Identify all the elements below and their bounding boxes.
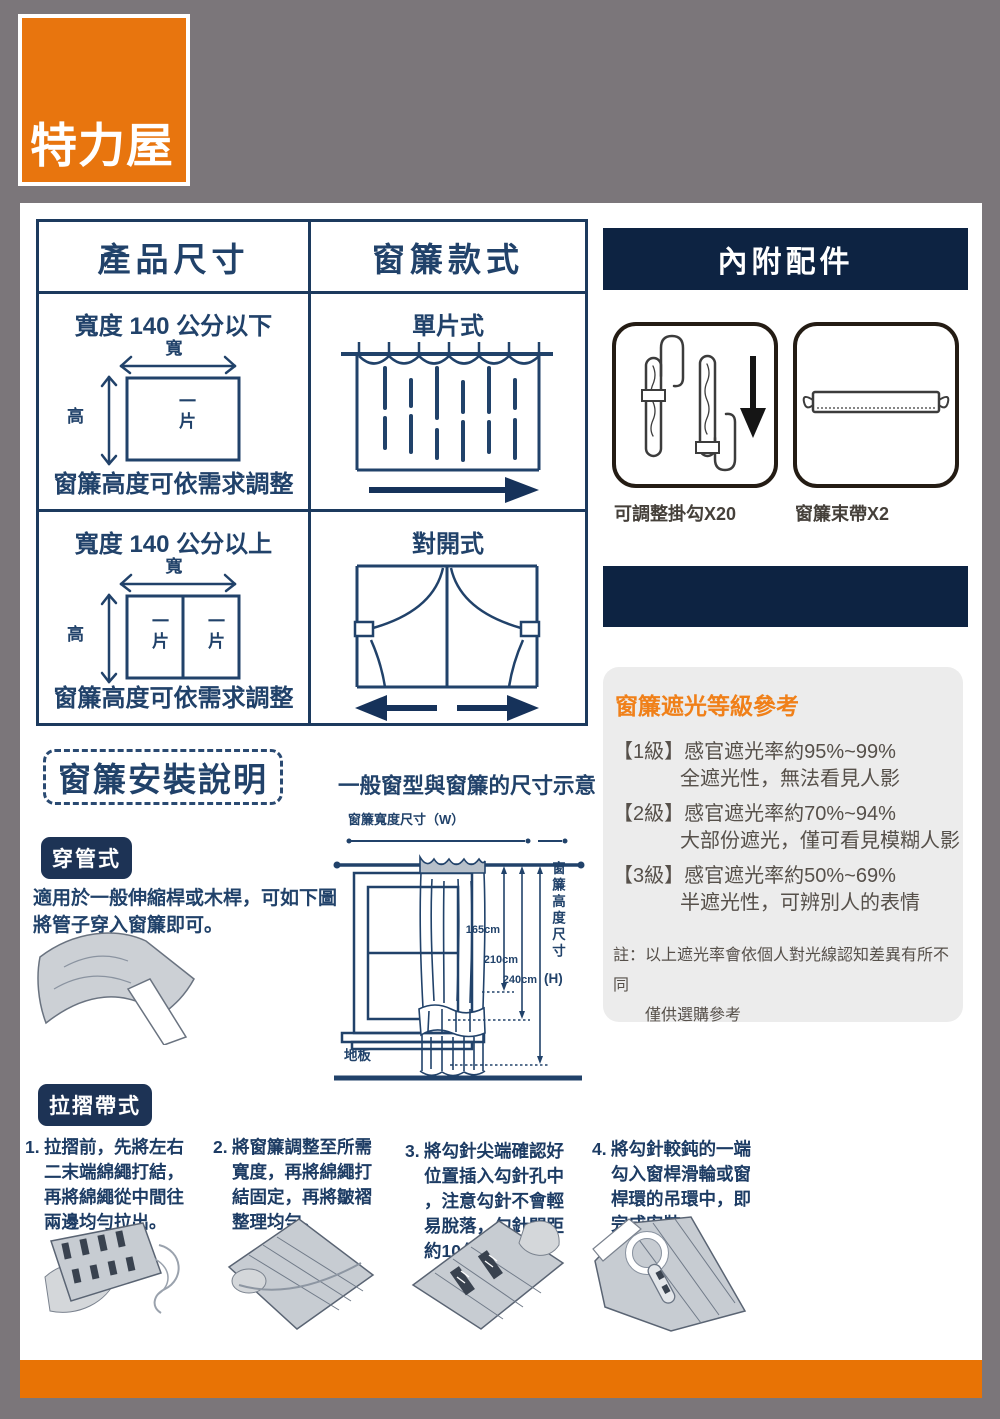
accessories-header: 內附配件	[603, 228, 968, 290]
floor-label: 地板	[344, 1047, 371, 1063]
accessory-tie-box	[793, 322, 959, 488]
style-title-split: 對開式	[311, 524, 585, 559]
piece-right-label: 一片	[202, 612, 227, 652]
style-title-single: 單片式	[311, 306, 585, 341]
one-piece-dimension-diagram: 寬 一片 高	[69, 340, 279, 472]
tie-count-label: 窗簾束帶X2	[795, 500, 889, 526]
height-label: 高	[67, 402, 84, 427]
rod-method-badge: 穿管式	[41, 837, 132, 879]
level-desc: 全遮光性，無法看見人影	[613, 766, 953, 793]
rod-through-curtain-illustration	[34, 927, 199, 1045]
two-piece-diagram-icon	[69, 558, 279, 690]
step2-tie-knot-illustration	[219, 1215, 378, 1333]
hook-count-label: 可調整掛勾X20	[614, 500, 736, 526]
level-grade: 【2級】	[613, 803, 684, 825]
two-piece-dimension-diagram: 寬 一片 一片 高	[69, 558, 279, 690]
shading-reference-box: 窗簾遮光等級參考 【1級】感官遮光率約95%~99% 全遮光性，無法看見人影 【…	[603, 667, 963, 1022]
dim-165-label: 165cm	[466, 924, 500, 936]
curtain-tie-icon	[797, 326, 955, 484]
cell-style-single: 單片式	[311, 294, 585, 512]
shading-level-2: 【2級】感官遮光率約70%~94% 大部份遮光，僅可看見模糊人影	[613, 801, 953, 855]
footer-orange-bar	[20, 1360, 982, 1398]
down-arrow-icon	[740, 356, 766, 438]
dim-240-label: 240cm	[503, 974, 537, 986]
level-grade: 【1級】	[613, 741, 684, 763]
size-note: 窗簾高度可依需求調整	[39, 678, 308, 713]
level-grade: 【3級】	[613, 865, 684, 887]
brand-logo-text: 特力屋	[30, 107, 174, 176]
brand-logo: 特力屋	[18, 14, 190, 186]
dim-210-label: 210cm	[484, 954, 518, 966]
level-rate: 感官遮光率約70%~94%	[684, 803, 896, 825]
slide-right-arrow-icon	[369, 477, 539, 503]
cell-style-split: 對開式	[311, 512, 585, 723]
cell-size-under140: 寬度 140 公分以下 寬 一片 高 窗簾高度可依需求調整	[39, 294, 311, 512]
step3-insert-hooks-illustration	[407, 1215, 568, 1333]
shading-note-line2: 僅供選購參考	[613, 1001, 953, 1031]
table-header-curtain-style: 窗簾款式	[311, 222, 585, 294]
level-rate: 感官遮光率約50%~69%	[684, 865, 896, 887]
level-desc: 大部份遮光，僅可看見模糊人影	[613, 828, 953, 855]
accessory-hooks-box	[612, 322, 778, 488]
piece-label: 一片	[173, 392, 198, 432]
height-dimension-suffix: (H)	[544, 971, 563, 986]
shading-note-line1: 註：以上遮光率會依個人對光線認知差異有所不同	[613, 941, 953, 1001]
shading-title: 窗簾遮光等級參考	[615, 687, 953, 721]
split-curtain-icon	[341, 556, 553, 724]
width-dimension-label: 窗簾寬度尺寸（W）	[348, 809, 464, 828]
step4-hang-on-ring-illustration	[591, 1215, 749, 1333]
level-desc: 半遮光性，可辨別人的表情	[613, 890, 953, 917]
size-style-table: 產品尺寸 窗簾款式 寬度 140 公分以下 寬 一片 高 窗	[36, 219, 588, 726]
width-label: 寬	[69, 552, 279, 577]
install-title-box: 窗簾安裝說明	[43, 749, 283, 805]
navy-divider-bar	[603, 566, 968, 627]
step1-pull-strings-illustration	[35, 1215, 187, 1333]
page: 產品尺寸 窗簾款式 寬度 140 公分以下 寬 一片 高 窗	[20, 203, 982, 1398]
pleat-method-badge: 拉摺帶式	[38, 1084, 152, 1126]
height-dimension-label: 窗簾高度尺寸	[547, 861, 567, 960]
cell-size-over140: 寬度 140 公分以上 寬 一片 一片 高 窗簾高度可依需求	[39, 512, 311, 723]
table-header-product-size: 產品尺寸	[39, 222, 311, 294]
shading-level-3: 【3級】感官遮光率約50%~69% 半遮光性，可辨別人的表情	[613, 863, 953, 917]
open-both-sides-arrow-icon	[355, 695, 539, 721]
size-note: 窗簾高度可依需求調整	[39, 464, 308, 499]
single-panel-curtain-icon	[341, 338, 553, 508]
level-rate: 感官遮光率約95%~99%	[684, 741, 896, 763]
height-label: 高	[67, 620, 84, 645]
adjustable-hooks-icon	[616, 326, 774, 484]
width-label: 寬	[69, 334, 279, 359]
shading-note: 註：以上遮光率會依個人對光線認知差異有所不同 僅供選購參考	[613, 941, 953, 1031]
shading-level-1: 【1級】感官遮光率約95%~99% 全遮光性，無法看見人影	[613, 739, 953, 793]
window-diagram-title: 一般窗型與窗簾的尺寸示意	[338, 769, 596, 800]
piece-left-label: 一片	[146, 612, 171, 652]
